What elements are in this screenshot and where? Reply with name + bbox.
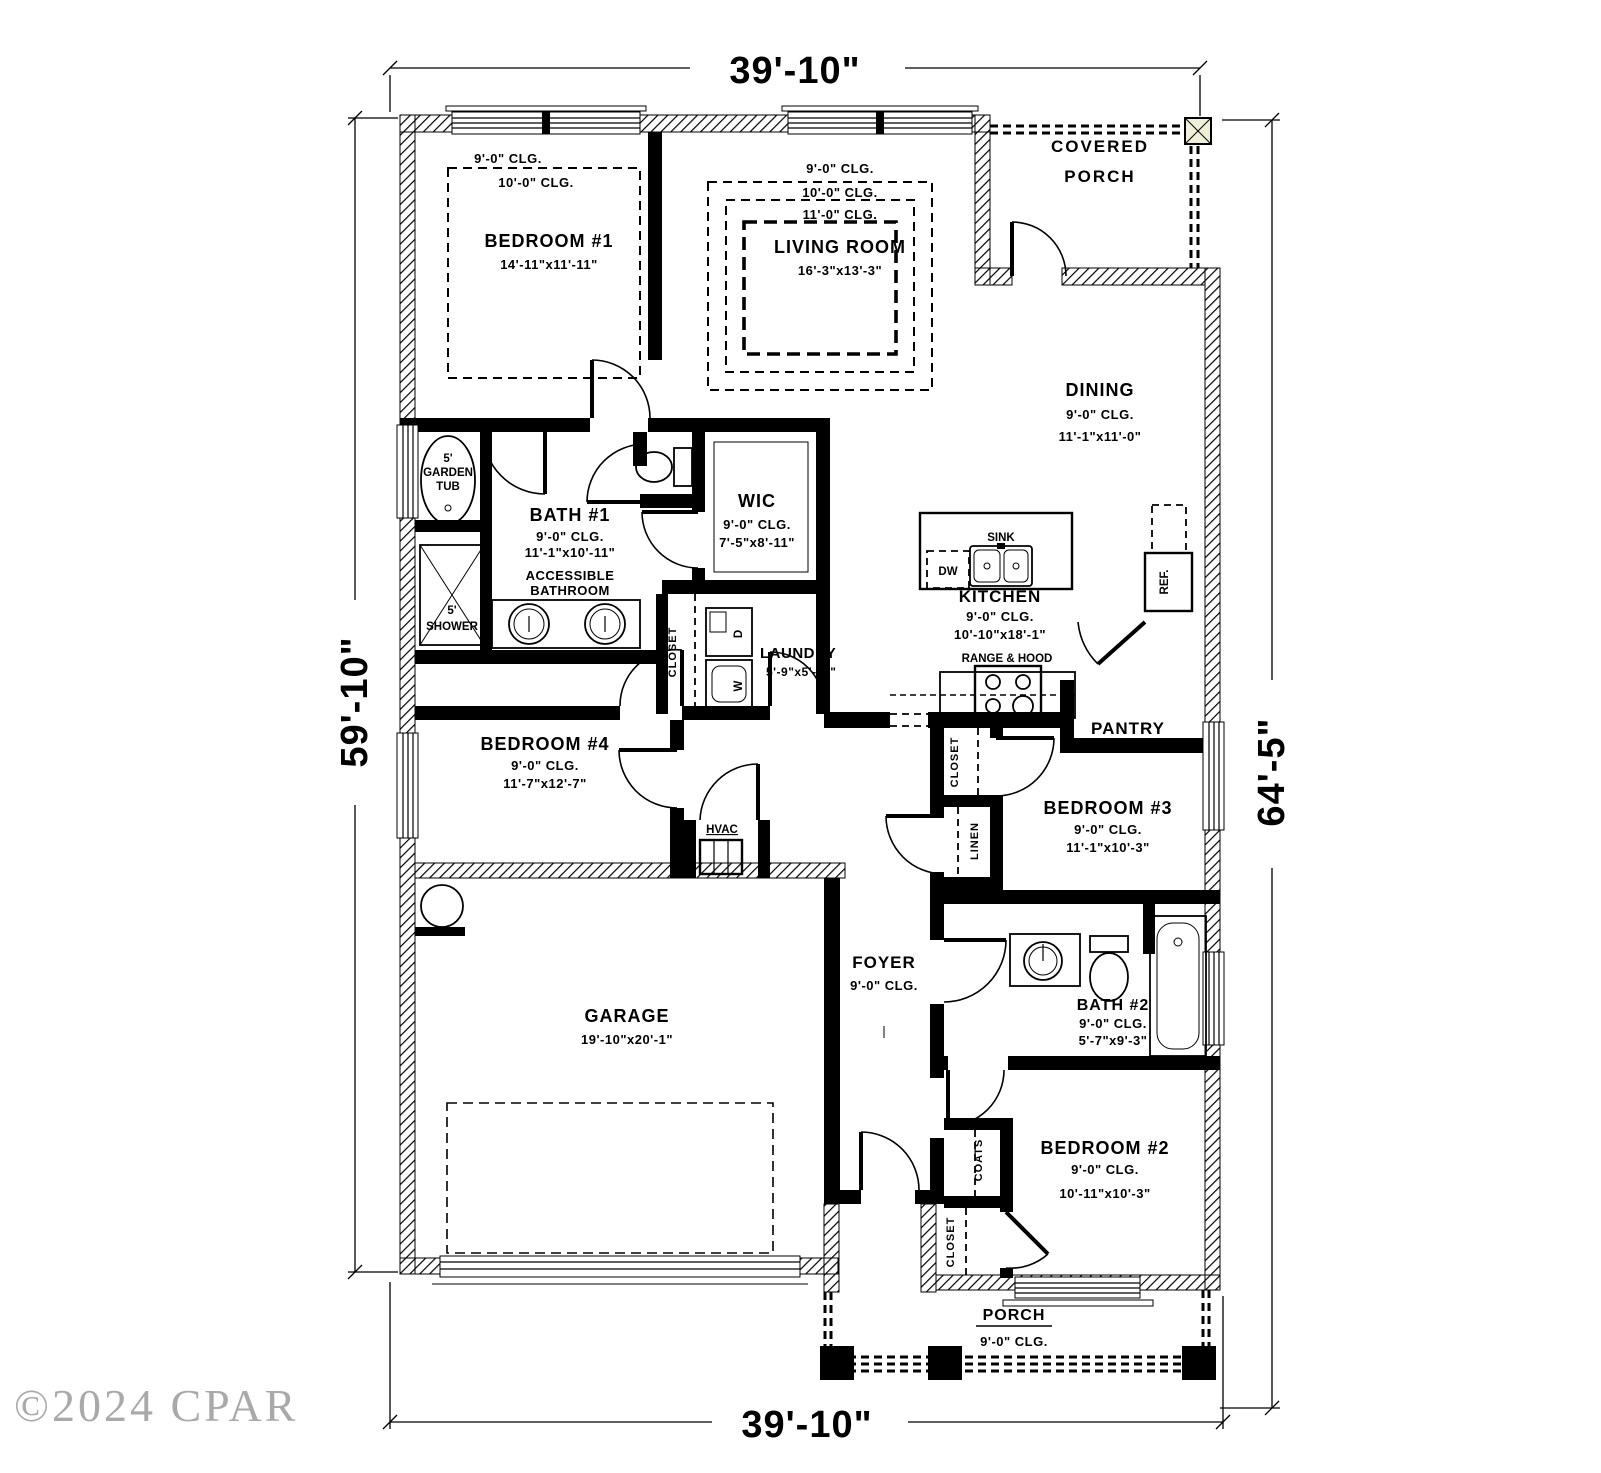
bedroom1-size: 14'-11"x11'-11" — [500, 257, 598, 272]
living-clg1: 9'-0" CLG. — [806, 161, 874, 176]
kitchen-size: 10'-10"x18'-1" — [954, 627, 1046, 642]
bath1-note2: BATHROOM — [530, 583, 610, 598]
water-heater — [421, 885, 463, 927]
dining-size: 11'-1"x11'-0" — [1059, 429, 1142, 444]
garage: GARAGE 19'-10"x20'-1" — [421, 885, 773, 1253]
bath2-vanity — [1010, 934, 1080, 986]
dim-right-text: 64'-5" — [1251, 717, 1293, 826]
range-hood-label: RANGE & HOOD — [962, 653, 1053, 665]
bedroom4-name: BEDROOM #4 — [480, 734, 609, 754]
bedroom2-name: BEDROOM #2 — [1040, 1138, 1169, 1158]
refrigerator-label: REF. — [1159, 570, 1171, 595]
dining: DINING 9'-0" CLG. 11'-1"x11'-0" — [1059, 380, 1142, 444]
bath-2: BATH #2 9'-0" CLG. 5'-7"x9'-3" — [944, 916, 1206, 1056]
garage-size: 19'-10"x20'-1" — [581, 1032, 673, 1047]
exterior-walls — [400, 115, 1220, 1292]
bedroom4-clg: 9'-0" CLG. — [511, 758, 579, 773]
dim-top-text: 39'-10" — [729, 50, 860, 92]
dining-name: DINING — [1066, 380, 1135, 400]
linen-label: LINEN — [969, 822, 981, 860]
porch-name: PORCH — [983, 1307, 1046, 1324]
bedroom3-clg: 9'-0" CLG. — [1074, 822, 1142, 837]
laundry-closet-label: CLOSET — [667, 627, 679, 678]
bath2-size: 5'-7"x9'-3" — [1079, 1033, 1148, 1048]
kitchen-clg: 9'-0" CLG. — [966, 609, 1034, 624]
living-room: 9'-0" CLG. 10'-0" CLG. 11'-0" CLG. LIVIN… — [708, 161, 932, 390]
wic-clg: 9'-0" CLG. — [723, 517, 791, 532]
living-clg2: 10'-0" CLG. — [802, 185, 877, 200]
dim-bottom-text: 39'-10" — [741, 1404, 872, 1446]
porch-door-arc — [1012, 222, 1066, 276]
foyer-name: FOYER — [852, 953, 916, 972]
dining-clg: 9'-0" CLG. — [1066, 407, 1134, 422]
bath1-note1: ACCESSIBLE — [526, 568, 615, 583]
porch-clg: 9'-0" CLG. — [980, 1334, 1048, 1349]
dishwasher-label: DW — [938, 566, 957, 578]
bed2-closet-door-arc — [1006, 1254, 1048, 1268]
bath1-name: BATH #1 — [530, 505, 611, 525]
shower-label-1: 5' — [447, 605, 456, 617]
bedroom2-clg: 9'-0" CLG. — [1071, 1162, 1139, 1177]
bath1-door-arc — [483, 432, 545, 494]
vestibule-door-arc — [948, 1070, 1004, 1126]
ref-upper-cabinet — [1152, 505, 1186, 553]
bathtub — [1150, 916, 1206, 1056]
pantry-door-arc — [1078, 622, 1098, 664]
front-door-arc — [861, 1132, 919, 1190]
bedroom3-size: 11'-1"x10'-3" — [1066, 840, 1150, 855]
bedroom-4: BEDROOM #4 9'-0" CLG. 11'-7"x12'-7" — [480, 650, 682, 808]
living-size: 16'-3"x13'-3" — [798, 263, 882, 278]
bedroom-2: COATS CLOSET BEDROOM #2 9'-0" CLG. 10'-1… — [945, 1070, 1170, 1275]
bedroom2-size: 10'-11"x10'-3" — [1059, 1186, 1150, 1201]
floor-plan-page: COVERED PORCH 9'-0" CLG. 10'-0" CLG. BED… — [0, 0, 1601, 1468]
tray-ceiling — [448, 168, 640, 378]
bedroom1-door-arc — [592, 360, 650, 418]
bath2-clg: 9'-0" CLG. — [1079, 1016, 1147, 1031]
covered-porch-label-2: PORCH — [1064, 167, 1135, 186]
hvac-closet: HVAC — [700, 764, 758, 874]
garden-tub-label-1: 5' — [443, 453, 452, 465]
wic-size: 7'-5"x8'-11" — [719, 535, 795, 550]
covered-porch: COVERED PORCH — [990, 118, 1211, 276]
hvac-label: HVAC — [706, 824, 738, 836]
pantry: PANTRY — [1078, 622, 1165, 738]
kitchen: SINK DW KITCHEN 9'-0" CLG. 10'-10"x18'-1… — [890, 505, 1192, 726]
kitchen-name: KITCHEN — [959, 587, 1042, 606]
bedroom1-name: BEDROOM #1 — [484, 231, 613, 251]
living-name: LIVING ROOM — [774, 237, 906, 257]
interior-walls — [400, 132, 1220, 1278]
foyer: FOYER 9'-0" CLG. — [850, 816, 944, 1190]
toilet-1 — [636, 448, 692, 486]
bath2-door-arc — [944, 940, 1006, 1002]
pantry-name: PANTRY — [1091, 719, 1165, 738]
foyer-clg: 9'-0" CLG. — [850, 978, 918, 993]
laundry-size: 5'-9"x5'-11" — [766, 665, 836, 679]
tray-ceiling-10 — [726, 200, 914, 372]
bath-1: 5' GARDEN TUB 5' SHOWER BATH #1 9'-0" CL… — [420, 432, 692, 648]
bath1-clg: 9'-0" CLG. — [536, 529, 604, 544]
dimension-right: 64'-5" — [1220, 113, 1293, 1415]
washer-label: W — [733, 680, 745, 691]
porch-post — [1182, 1346, 1216, 1380]
garage-name: GARAGE — [584, 1006, 669, 1026]
porch-post — [928, 1346, 962, 1380]
bedroom4-door-arc — [619, 750, 677, 808]
bedroom-1: 9'-0" CLG. 10'-0" CLG. BEDROOM #1 14'-11… — [448, 151, 650, 418]
bed3-closet-label: CLOSET — [949, 737, 961, 788]
bedroom3-door-arc — [996, 738, 1054, 796]
dryer: D — [706, 608, 752, 656]
bedroom3-name: BEDROOM #3 — [1043, 798, 1172, 818]
dryer-label: D — [733, 630, 745, 638]
bedroom4-size: 11'-7"x12'-7" — [503, 776, 587, 791]
dimension-left: 59'-10" — [334, 111, 398, 1279]
bath2-name: BATH #2 — [1077, 997, 1150, 1014]
wic-name: WIC — [738, 491, 776, 511]
living-clg3: 11'-0" CLG. — [803, 207, 878, 222]
garden-tub-label-3: TUB — [436, 481, 460, 493]
front-porch: PORCH 9'-0" CLG. — [820, 1290, 1216, 1380]
shower-label-2: SHOWER — [426, 621, 478, 633]
garden-tub-label-2: GARDEN — [423, 467, 473, 479]
kitchen-sink — [970, 543, 1032, 586]
floor-plan-drawing: COVERED PORCH 9'-0" CLG. 10'-0" CLG. BED… — [0, 0, 1601, 1468]
sink-label: SINK — [987, 532, 1015, 544]
washer: W — [706, 660, 752, 708]
window-sill — [446, 106, 646, 111]
bedroom1-clg2: 10'-0" CLG. — [498, 175, 573, 190]
wic-door-arc — [642, 512, 698, 568]
hvac-door-arc — [700, 764, 758, 820]
bed2-closet-door-leaf — [1006, 1212, 1048, 1254]
watermark: ©2024 CPAR — [14, 1380, 298, 1431]
window-sill — [1003, 1300, 1153, 1306]
tub-drain — [445, 505, 451, 511]
hall3-door-arc — [886, 816, 944, 874]
porch-post — [820, 1346, 854, 1380]
pantry-door-leaf — [1098, 622, 1145, 664]
bedroom1-clg1: 9'-0" CLG. — [474, 151, 542, 166]
toilet-2 — [1090, 936, 1128, 1001]
window-sill — [782, 106, 978, 111]
bed2-closet-label: CLOSET — [945, 1217, 957, 1268]
laundry: CLOSET D W LAUNDRY 5'-9"x5'-11" — [667, 594, 836, 714]
coats-label: COATS — [973, 1139, 985, 1182]
garage-door-opening — [440, 1256, 800, 1277]
bath1-size: 11'-1"x10'-11" — [525, 545, 616, 560]
dim-left-text: 59'-10" — [334, 636, 376, 767]
covered-porch-label-1: COVERED — [1051, 137, 1149, 156]
garage-door-dashed — [447, 1103, 773, 1253]
porch-post — [1185, 118, 1211, 144]
